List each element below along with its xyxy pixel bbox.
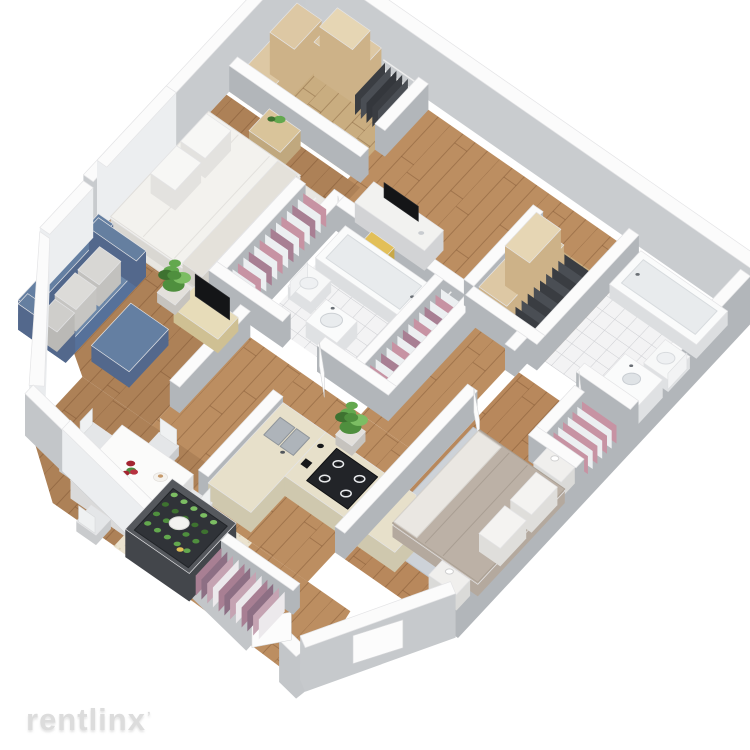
floorplan-scene bbox=[0, 0, 750, 750]
watermark-text: rentlinx bbox=[26, 702, 146, 737]
floorplan-3d-render: rentlinxʼ bbox=[0, 0, 750, 750]
watermark-mark: ʼ bbox=[147, 709, 152, 724]
watermark-logo: rentlinxʼ bbox=[26, 702, 152, 738]
